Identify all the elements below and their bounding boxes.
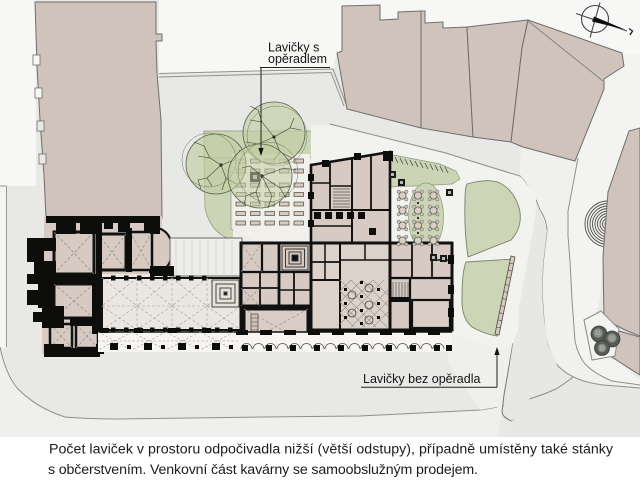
svg-text:opěradlem: opěradlem: [268, 52, 327, 66]
svg-text:s občerstvením. Venkovní část: s občerstvením. Venkovní část kavárny se…: [48, 462, 478, 478]
svg-text:Počet laviček v prostoru odpoč: Počet laviček v prostoru odpočivadla niž…: [49, 442, 614, 458]
svg-text:Lavičky bez opěradla: Lavičky bez opěradla: [363, 372, 480, 386]
